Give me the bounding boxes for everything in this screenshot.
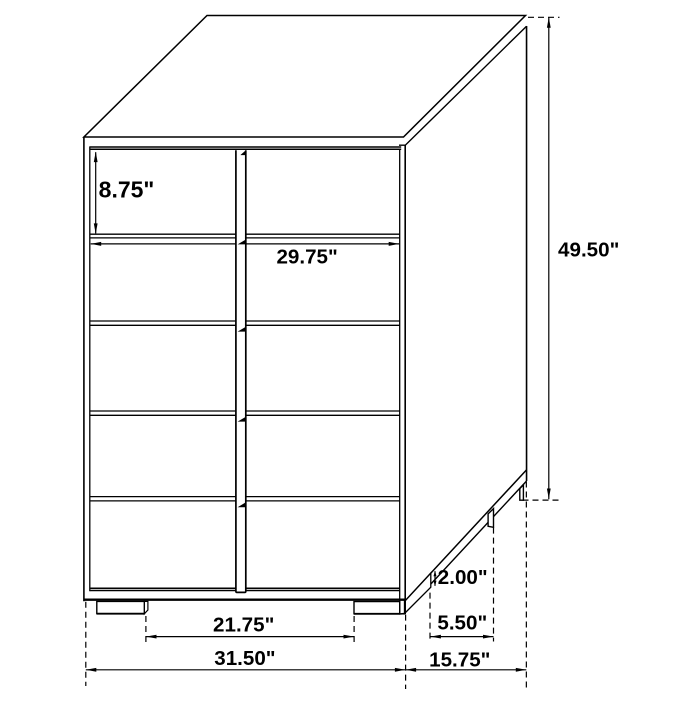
svg-text:8.75": 8.75" — [99, 177, 155, 203]
svg-text:29.75": 29.75" — [276, 246, 337, 269]
svg-text:15.75": 15.75" — [429, 649, 490, 672]
svg-text:2.00": 2.00" — [438, 566, 488, 589]
svg-text:31.50": 31.50" — [214, 647, 275, 670]
svg-text:49.50": 49.50" — [558, 239, 619, 262]
svg-text:21.75": 21.75" — [213, 614, 274, 637]
svg-text:5.50": 5.50" — [437, 612, 487, 635]
